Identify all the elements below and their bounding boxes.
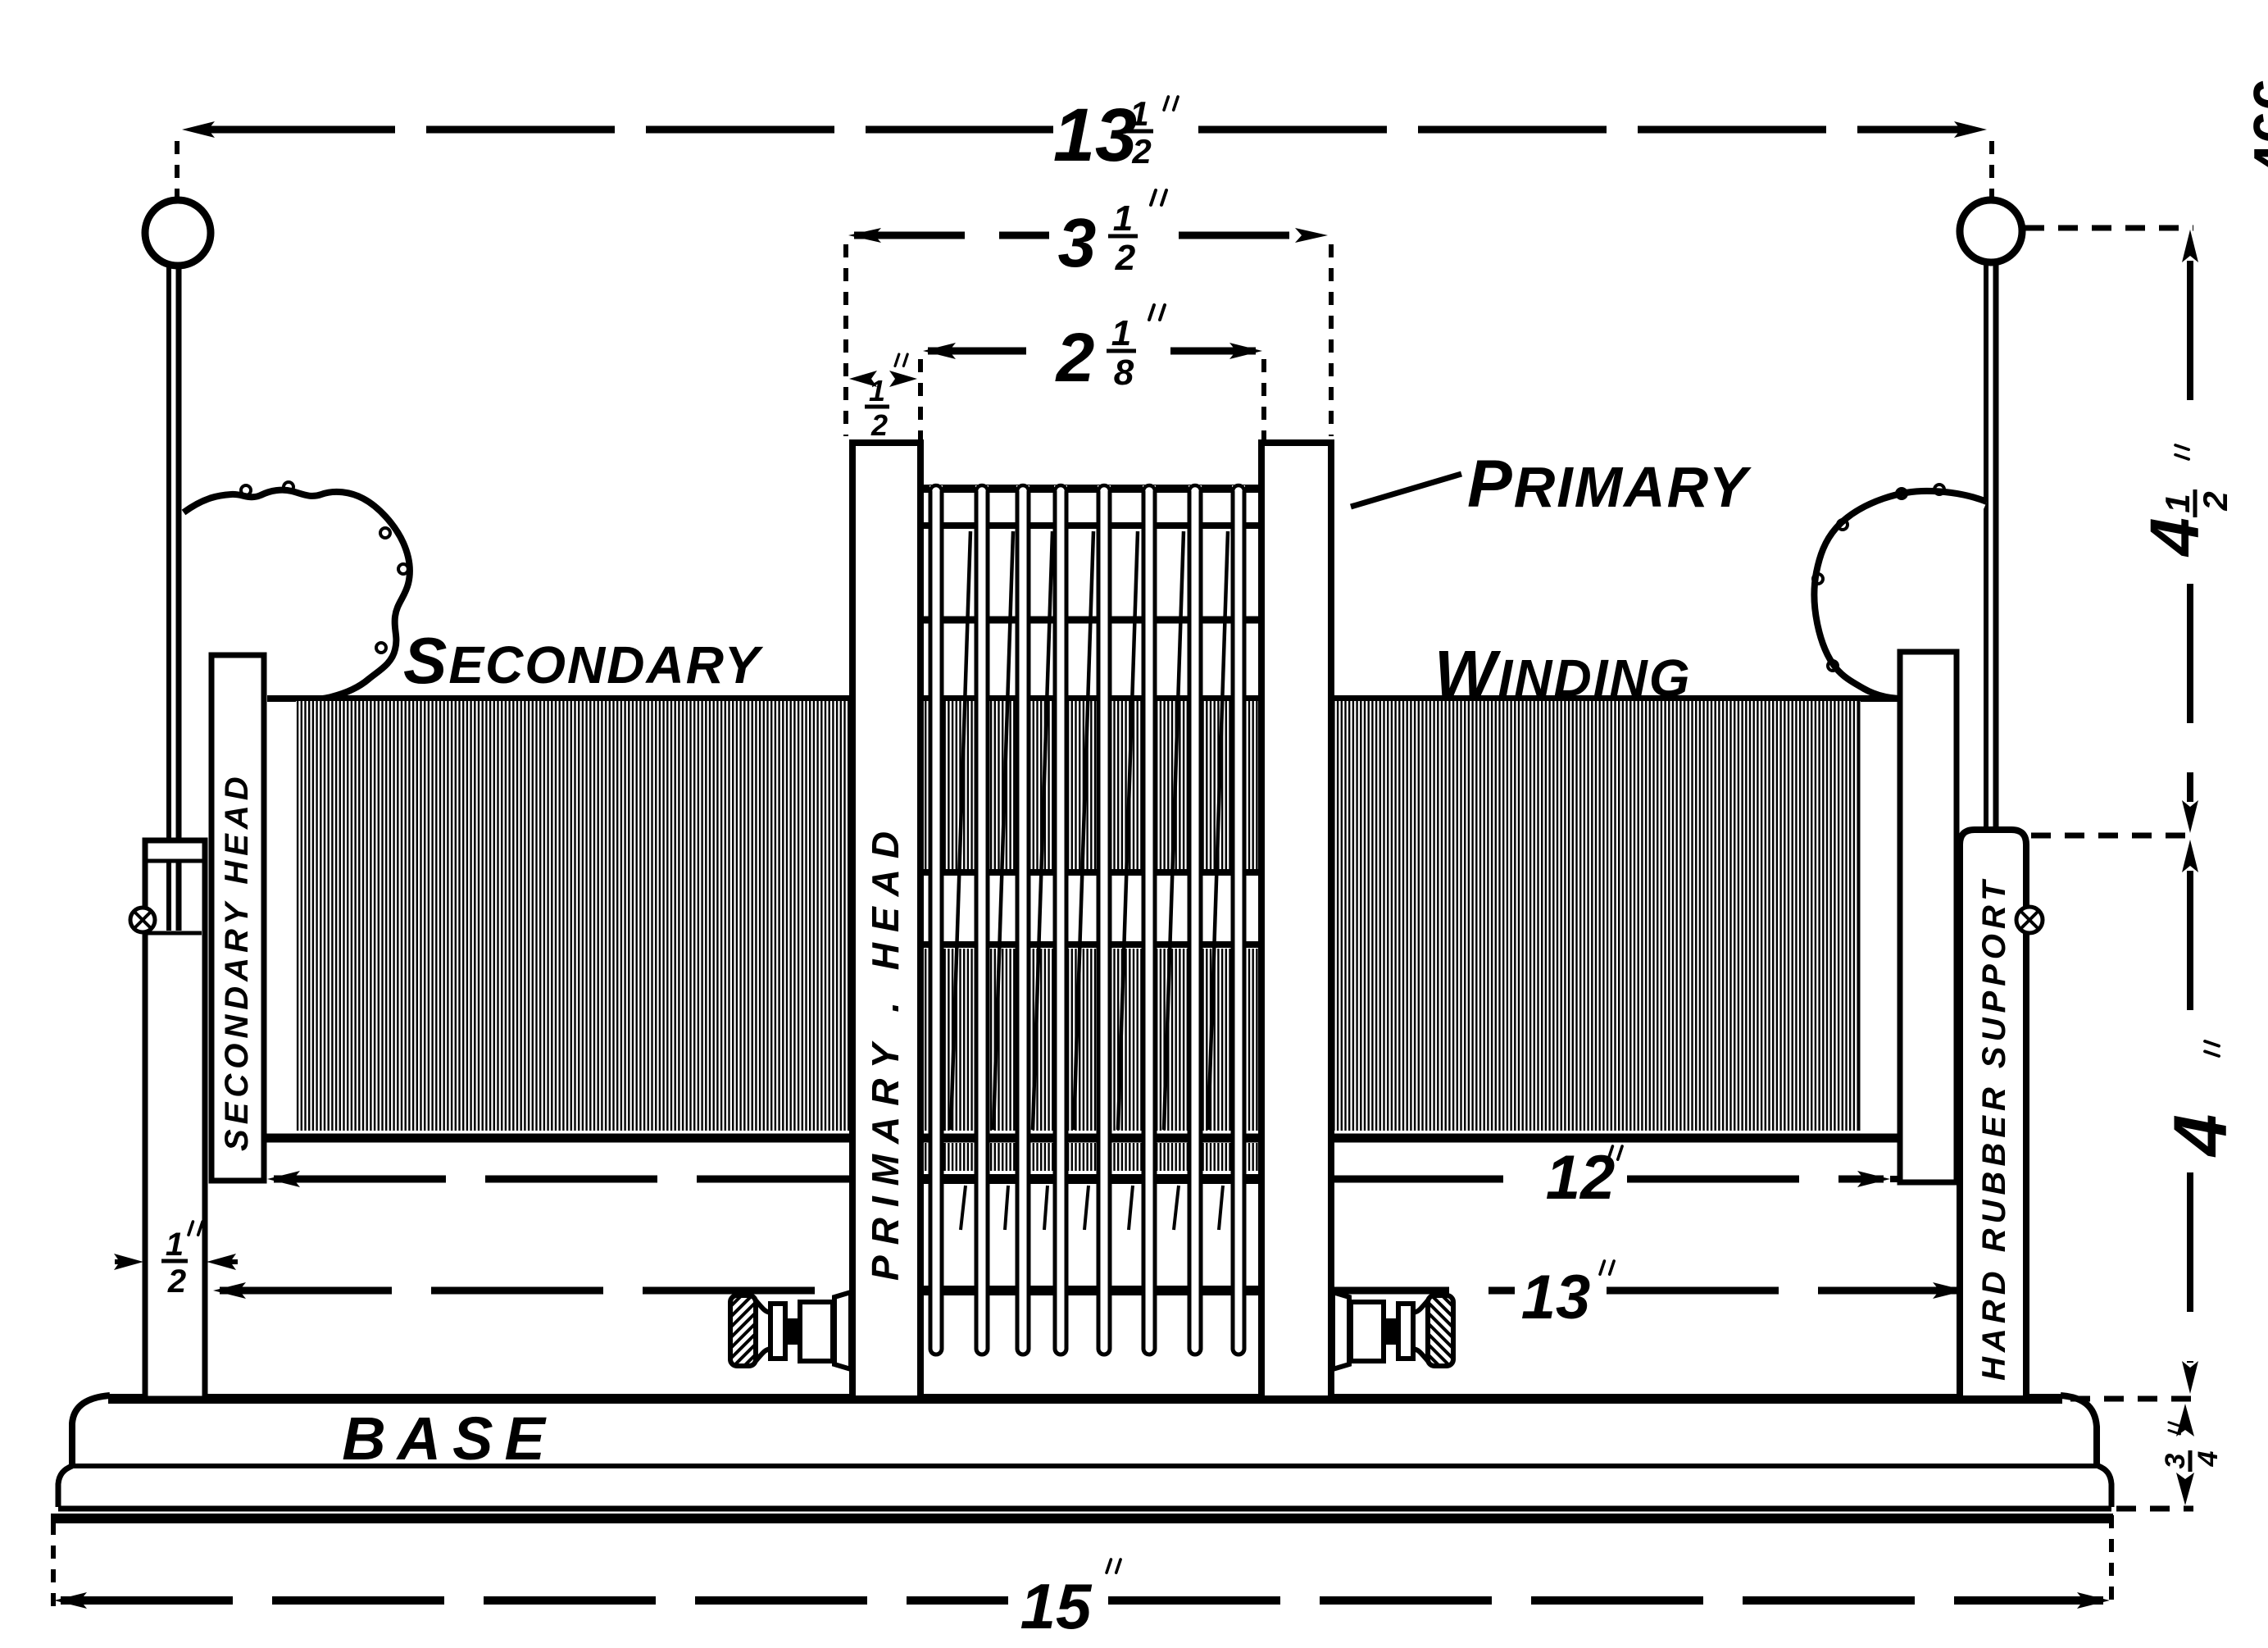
svg-text:1: 1 (166, 1227, 184, 1263)
svg-text:2: 2 (1115, 238, 1136, 278)
svg-text:PRIMARY . HEAD: PRIMARY . HEAD (864, 821, 907, 1281)
svg-text:466: 466 (2243, 78, 2268, 176)
svg-text:HARD RUBBER SUPPORT: HARD RUBBER SUPPORT (1976, 876, 2012, 1381)
svg-text:2: 2 (1055, 319, 1095, 396)
svg-text:15: 15 (1020, 1570, 1093, 1642)
svg-text:4: 4 (2193, 1450, 2224, 1467)
svg-text:SECONDARY: SECONDARY (403, 624, 764, 697)
svg-text:SECONDARY HEAD: SECONDARY HEAD (219, 772, 255, 1151)
svg-text:13: 13 (1521, 1263, 1591, 1332)
svg-text:8: 8 (1114, 353, 1134, 393)
svg-text:1: 1 (869, 374, 885, 407)
svg-text:12: 12 (1546, 1143, 1616, 1213)
svg-text:1: 1 (2158, 494, 2197, 512)
svg-text:BASE: BASE (342, 1404, 557, 1473)
svg-text:1: 1 (1111, 313, 1131, 353)
svg-text:13: 13 (1053, 93, 1137, 177)
svg-text:1: 1 (1113, 198, 1133, 239)
svg-text:4: 4 (2159, 1114, 2243, 1158)
svg-text:3: 3 (1058, 204, 1097, 281)
svg-text:1: 1 (1129, 94, 1148, 133)
svg-text:3: 3 (2160, 1453, 2191, 1468)
svg-text:4: 4 (2136, 517, 2213, 558)
svg-text:2: 2 (870, 408, 888, 442)
svg-text:PRIMARY: PRIMARY (1467, 447, 1752, 521)
svg-text:2: 2 (167, 1263, 186, 1300)
svg-text:2: 2 (2196, 491, 2234, 511)
svg-text:WINDING: WINDING (1434, 637, 1692, 710)
svg-text:2: 2 (1131, 132, 1151, 171)
